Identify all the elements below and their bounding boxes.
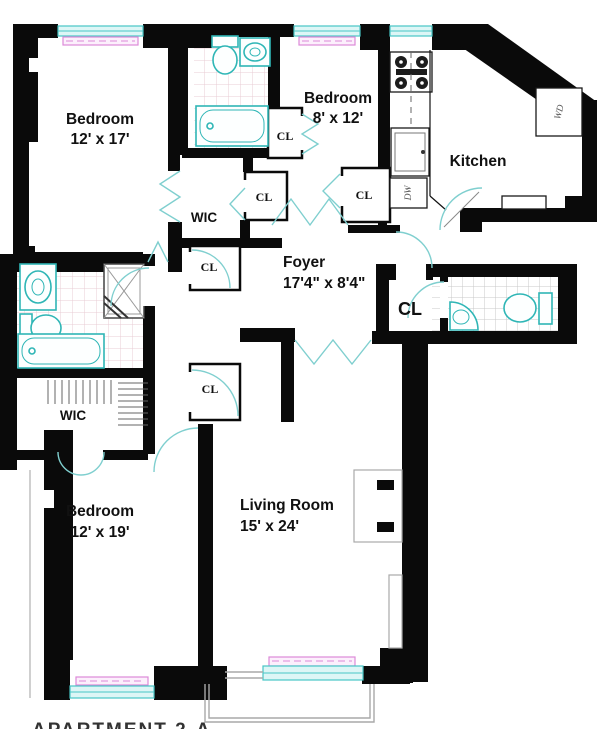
- floor-plan: Bedroom 12' x 17' Bedroom 8' x 12' Kitch…: [0, 0, 600, 729]
- entry-closet-label: CL: [398, 299, 422, 319]
- living-room-double-door: [295, 340, 371, 364]
- closet-label-1: CL: [277, 129, 294, 143]
- bedroom3-window: [70, 677, 154, 698]
- toilet: [504, 293, 552, 324]
- bedroom2-label: Bedroom: [304, 90, 372, 107]
- kitchen-sink: [391, 128, 429, 176]
- bedroom3-dims: 12' x 19': [70, 524, 129, 541]
- sink: [240, 38, 270, 66]
- wic-top-door: [230, 188, 245, 220]
- closet-label-3: CL: [356, 188, 373, 202]
- toilet: [212, 36, 238, 74]
- living-room-window: [225, 657, 363, 680]
- bedroom3-label: Bedroom: [66, 503, 134, 520]
- bathtub: [196, 106, 268, 146]
- wic-left-door-b: [81, 452, 104, 475]
- floor-plan-canvas: Bedroom 12' x 17' Bedroom 8' x 12' Kitch…: [0, 0, 600, 729]
- bedroom1-door: [160, 171, 180, 222]
- kitchen-window: [390, 26, 432, 36]
- apartment-label: APARTMENT 2-A: [32, 720, 212, 729]
- sink: [20, 264, 56, 310]
- shower: [104, 264, 144, 318]
- closet-label-2: CL: [256, 190, 273, 204]
- kitchen-label: Kitchen: [450, 153, 507, 170]
- bedroom1-window: [58, 26, 143, 45]
- living-room-dims: 15' x 24': [240, 518, 299, 535]
- bedroom1-label: Bedroom: [66, 111, 134, 128]
- foyer-dims: 17'4" x 8'4": [283, 275, 365, 292]
- foyer-label: Foyer: [283, 254, 325, 271]
- living-room-label: Living Room: [240, 497, 334, 514]
- dishwasher-label: DW: [404, 185, 414, 202]
- closet-label-6: CL: [202, 382, 219, 396]
- bathtub: [18, 334, 104, 368]
- bedroom2-window: [294, 26, 360, 45]
- wic-left-label: WIC: [60, 408, 86, 423]
- labels: Bedroom 12' x 17' Bedroom 8' x 12' Kitch…: [32, 90, 567, 729]
- entry-closet-door: [396, 232, 432, 268]
- bedroom3-door: [154, 428, 198, 472]
- closet-label-4: CL: [201, 260, 218, 274]
- wic-top-label: WIC: [191, 210, 217, 225]
- wall-niche-thin: [389, 575, 402, 648]
- bedroom2-dims: 8' x 12': [313, 110, 363, 127]
- terrace-outline: [205, 684, 374, 722]
- kitchen-radiator-cabinet: [502, 196, 546, 209]
- bedroom1-dims: 12' x 17': [70, 131, 129, 148]
